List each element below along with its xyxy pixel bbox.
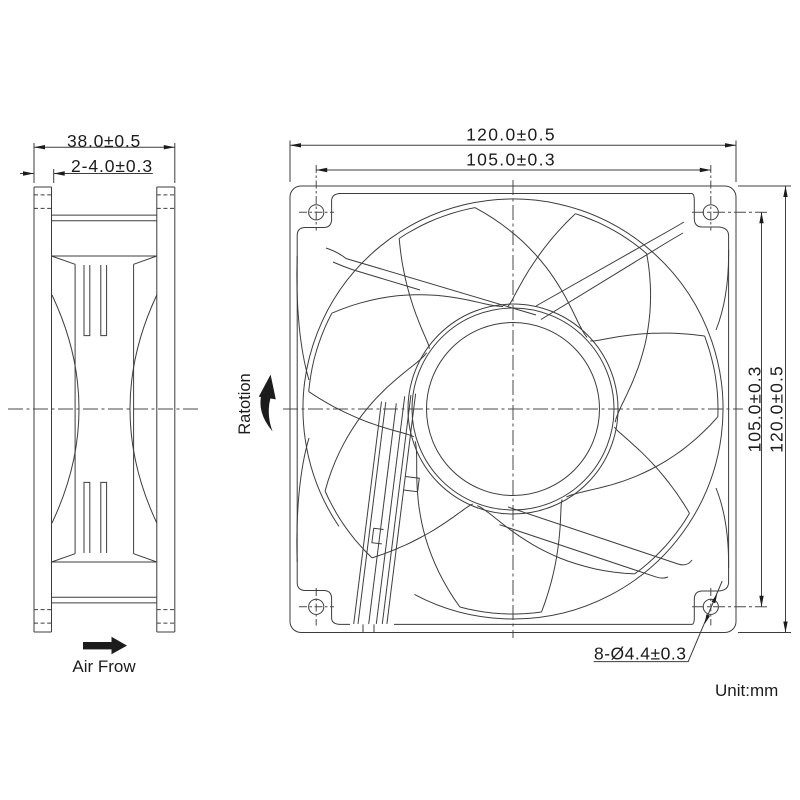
svg-text:Ratotion: Ratotion [236, 373, 254, 434]
svg-text:105.0±0.3: 105.0±0.3 [466, 150, 556, 170]
svg-text:Unit:mm: Unit:mm [715, 681, 778, 700]
svg-text:38.0±0.5: 38.0±0.5 [67, 131, 141, 151]
svg-text:105.0±0.3: 105.0±0.3 [745, 366, 765, 453]
svg-text:120.0±0.5: 120.0±0.5 [767, 365, 787, 453]
svg-text:2-4.0±0.3: 2-4.0±0.3 [71, 156, 153, 176]
svg-text:Air Frow: Air Frow [72, 657, 136, 676]
svg-text:8-Ø4.4±0.3: 8-Ø4.4±0.3 [594, 644, 686, 664]
svg-text:120.0±0.5: 120.0±0.5 [466, 125, 556, 145]
